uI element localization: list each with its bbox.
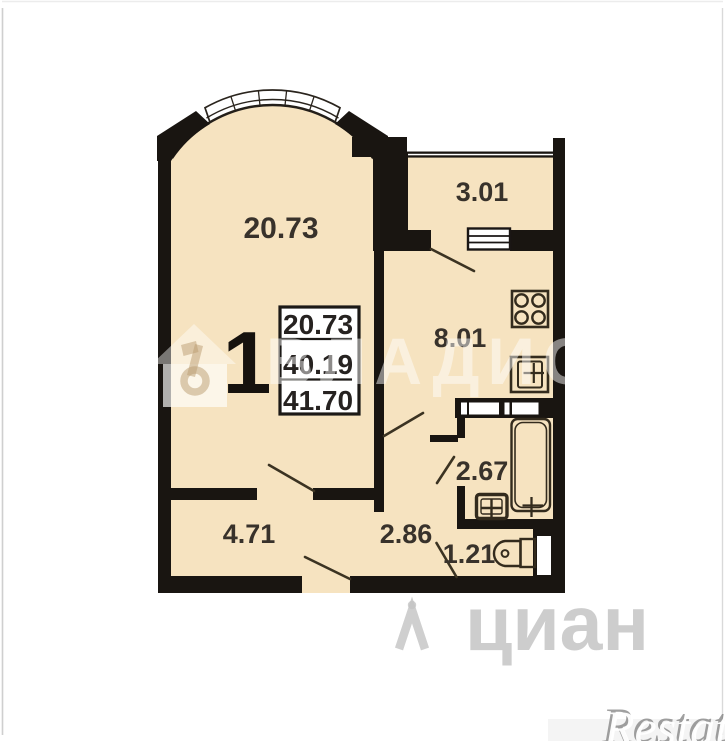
svg-text:1.21: 1.21 [443,539,496,569]
svg-text:ВЛАДИС: ВЛАДИС [266,324,599,398]
svg-text:2.67: 2.67 [456,456,509,486]
svg-text:2.86: 2.86 [380,519,433,549]
svg-text:3.01: 3.01 [456,177,509,207]
svg-text:Restate: Restate [603,700,725,741]
svg-text:4.71: 4.71 [223,519,276,549]
svg-text:20.73: 20.73 [243,212,318,245]
svg-text:циан: циан [465,581,649,667]
